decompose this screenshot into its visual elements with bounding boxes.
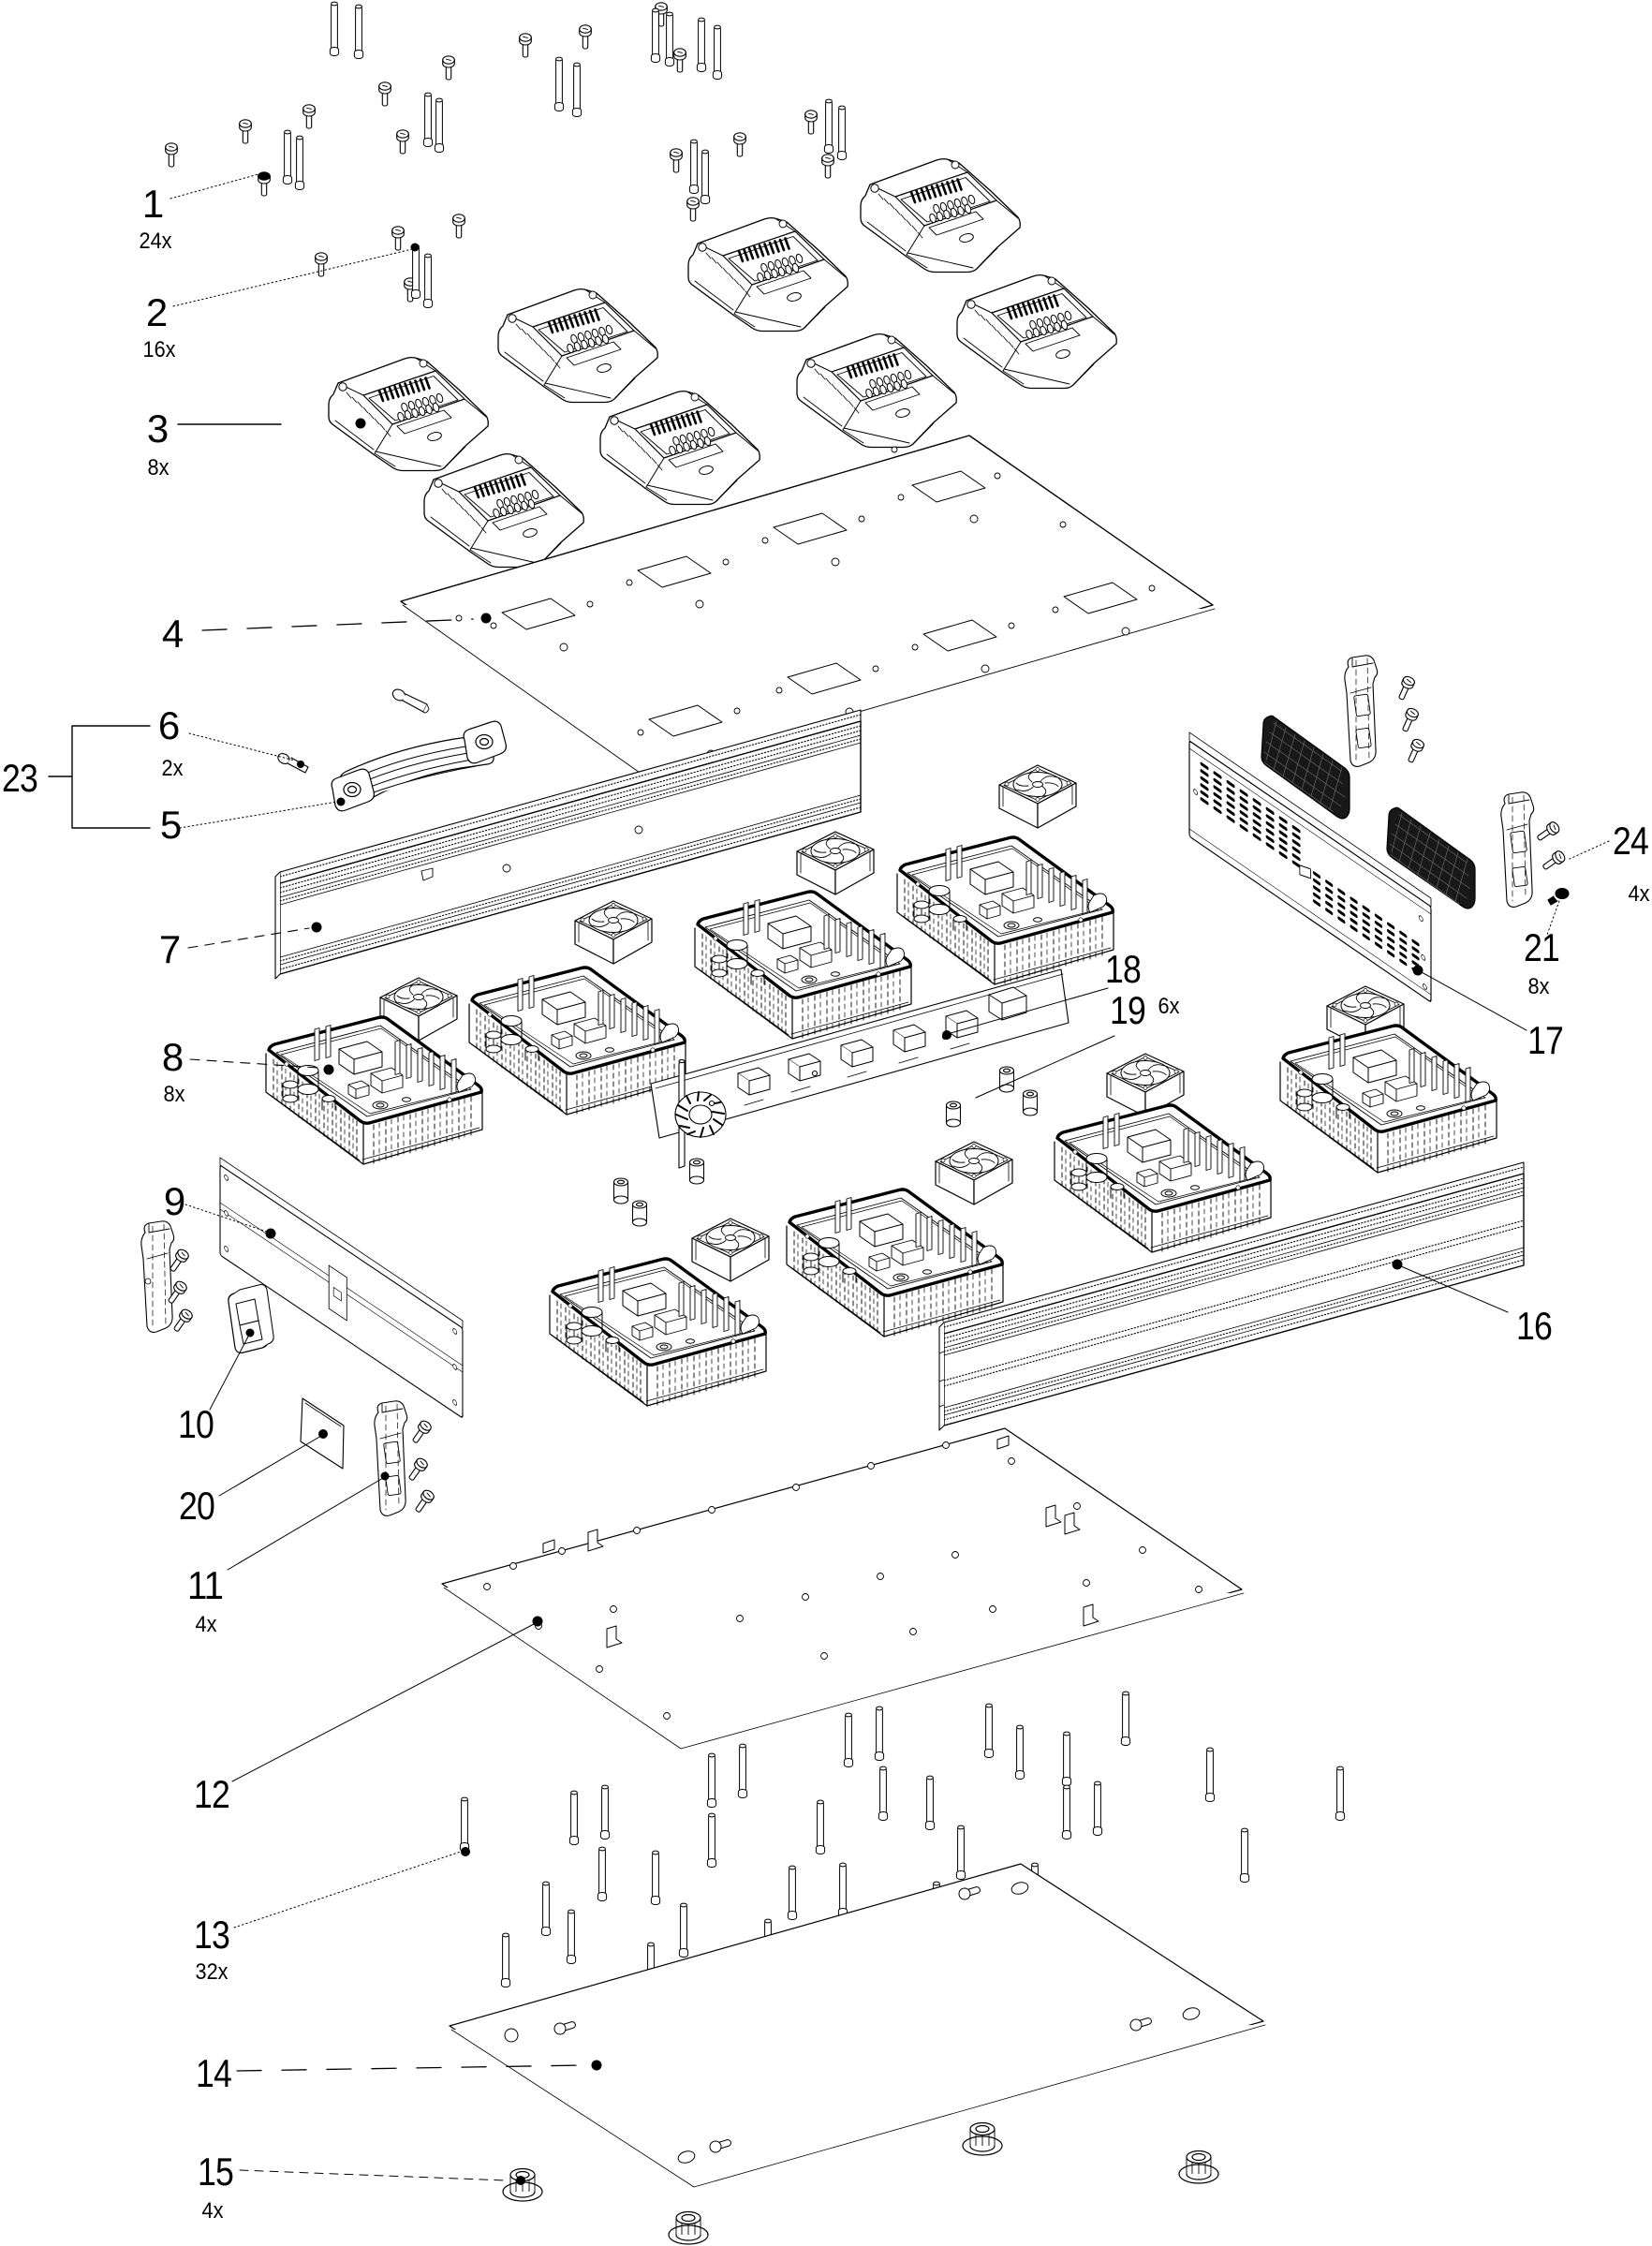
svg-text:8: 8 xyxy=(162,1035,183,1079)
svg-text:10: 10 xyxy=(178,1402,214,1446)
svg-text:6x: 6x xyxy=(1158,994,1180,1019)
svg-text:4x: 4x xyxy=(196,1612,217,1637)
svg-text:21: 21 xyxy=(1524,925,1559,969)
svg-text:2x: 2x xyxy=(162,756,184,781)
svg-text:8x: 8x xyxy=(164,1082,185,1107)
svg-text:7: 7 xyxy=(159,927,180,971)
svg-text:9: 9 xyxy=(164,1179,184,1223)
svg-text:2: 2 xyxy=(146,290,167,334)
svg-text:19: 19 xyxy=(1110,988,1145,1032)
svg-text:24x: 24x xyxy=(140,229,172,254)
svg-text:6: 6 xyxy=(158,703,179,747)
svg-text:23: 23 xyxy=(2,756,37,800)
svg-text:11: 11 xyxy=(187,1563,223,1607)
svg-text:3: 3 xyxy=(147,406,168,451)
svg-text:20: 20 xyxy=(179,1484,214,1528)
svg-text:16x: 16x xyxy=(143,337,176,362)
svg-text:1: 1 xyxy=(142,182,163,226)
svg-text:5: 5 xyxy=(160,803,181,847)
svg-text:15: 15 xyxy=(198,2150,233,2194)
svg-text:8x: 8x xyxy=(1528,974,1550,999)
svg-text:13: 13 xyxy=(194,1913,229,1957)
svg-text:32x: 32x xyxy=(196,1959,229,1985)
svg-text:12: 12 xyxy=(194,1772,229,1816)
svg-text:4x: 4x xyxy=(202,2198,224,2224)
svg-text:8x: 8x xyxy=(148,455,170,480)
svg-text:24: 24 xyxy=(1613,819,1649,863)
svg-text:18: 18 xyxy=(1105,947,1141,991)
svg-text:16: 16 xyxy=(1516,1304,1552,1348)
svg-text:4x: 4x xyxy=(1629,881,1650,907)
svg-text:4: 4 xyxy=(162,612,184,656)
svg-text:17: 17 xyxy=(1527,1018,1563,1062)
svg-text:14: 14 xyxy=(196,2051,232,2095)
